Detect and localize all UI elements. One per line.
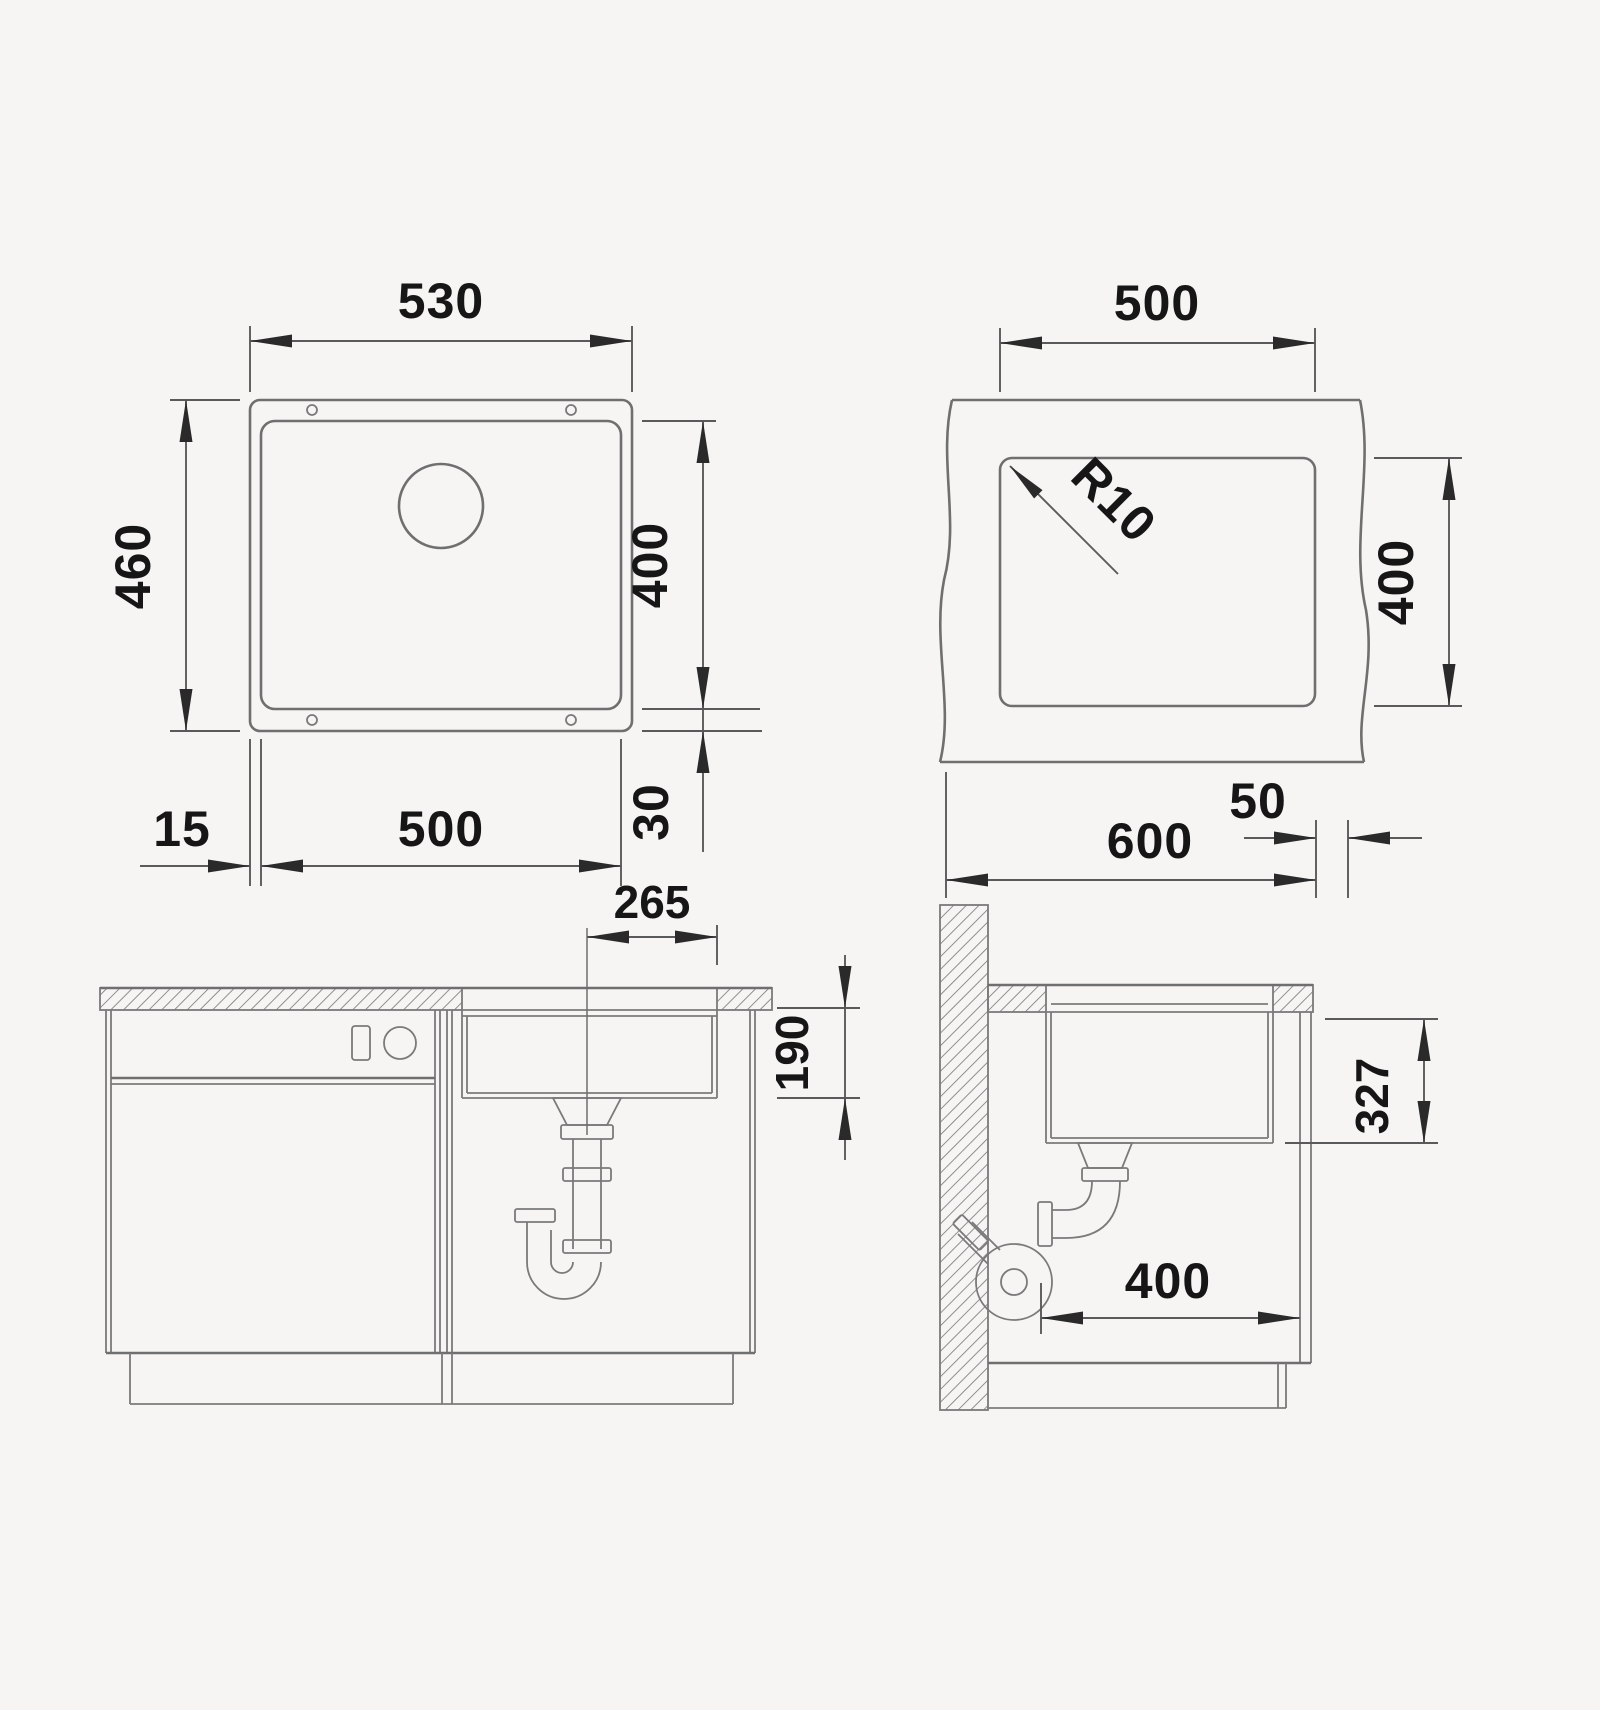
dim-drain-offset: 265 [587, 876, 717, 965]
dim-clearance: 400 [1041, 1253, 1300, 1334]
dim-outer-depth: 460 [105, 400, 240, 731]
dim-label-400-side: 400 [1125, 1253, 1211, 1309]
dim-label-265: 265 [614, 876, 691, 928]
countertop-patch [940, 400, 1369, 762]
dim-label-400-plan: 400 [622, 522, 678, 608]
side-countertop [988, 985, 1313, 1012]
dim-label-500-plan: 500 [398, 801, 484, 857]
dim-rim-bottom: 30 [623, 709, 762, 852]
drain-hole [399, 464, 483, 548]
sink-outer-rim [250, 400, 632, 731]
plan-view: 530 460 400 30 [105, 273, 762, 886]
cutout-view: 500 R10 400 600 [940, 275, 1462, 898]
side-bowl-section [1046, 1012, 1273, 1143]
dim-bowl-depth: 190 [766, 955, 860, 1160]
dim-label-400-cutout: 400 [1368, 539, 1424, 625]
dim-label-500-cutout: 500 [1114, 275, 1200, 331]
dim-under-counter-depth: 327 [1285, 1019, 1438, 1143]
mounting-holes [307, 405, 576, 725]
front-countertop [100, 988, 772, 1016]
dim-label-r10: R10 [1061, 447, 1168, 554]
control-knob [384, 1027, 416, 1059]
front-cabinet [106, 1010, 755, 1404]
dim-cabinet-width-group: 600 50 [946, 772, 1422, 898]
dishwasher-controls [352, 1026, 416, 1060]
cutout-opening [1000, 458, 1315, 706]
dim-cutout-depth: 400 [1368, 458, 1462, 706]
dim-label-50: 50 [1229, 773, 1287, 829]
side-cabinet [988, 1012, 1311, 1408]
dim-outer-width: 530 [250, 273, 632, 392]
dim-bowl-height: 400 [622, 421, 760, 709]
side-wall [940, 905, 988, 1410]
dim-label-460: 460 [105, 523, 161, 609]
dim-label-190: 190 [766, 1015, 818, 1092]
dim-label-600: 600 [1107, 813, 1193, 869]
dim-label-530: 530 [398, 273, 484, 329]
front-drain-trap [515, 928, 621, 1299]
dim-label-327: 327 [1346, 1058, 1398, 1135]
technical-drawing: 530 460 400 30 [0, 0, 1600, 1710]
corner-radius-callout: R10 [1010, 447, 1167, 574]
dim-cutout-width: 500 [1000, 275, 1315, 392]
drawing-sheet: 530 460 400 30 [0, 0, 1600, 1710]
dim-bottom-group: 15 500 [140, 739, 621, 886]
front-elevation-view: 265 190 [100, 876, 860, 1404]
dim-label-30: 30 [623, 783, 679, 841]
side-section-view: 327 400 [940, 905, 1438, 1410]
front-bowl-section [462, 1010, 717, 1098]
dim-label-15: 15 [153, 801, 211, 857]
control-switch [352, 1026, 370, 1060]
